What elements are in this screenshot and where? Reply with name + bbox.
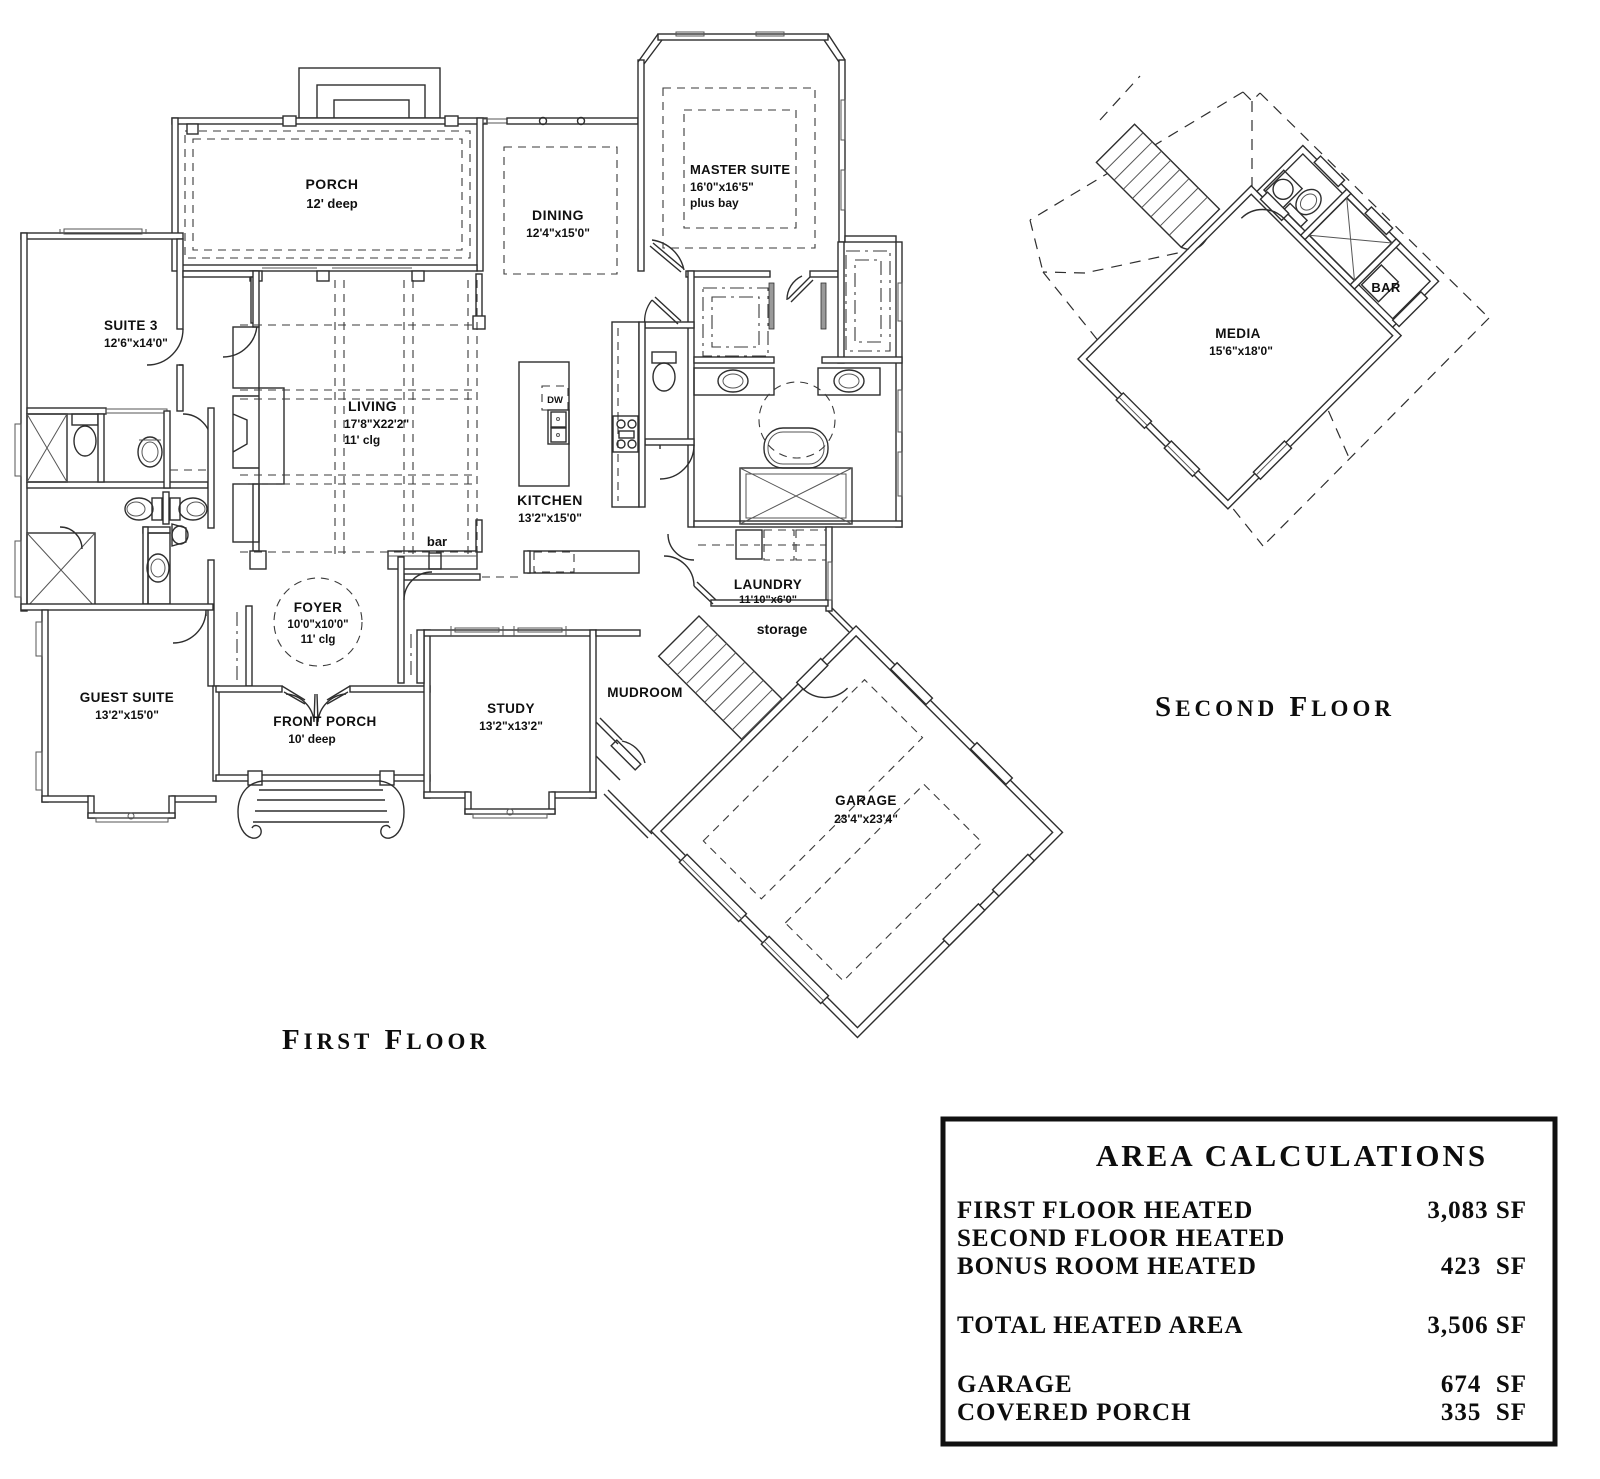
svg-text:10'0"x10'0": 10'0"x10'0" bbox=[287, 619, 348, 631]
svg-text:10' deep: 10' deep bbox=[288, 732, 336, 746]
svg-text:11' clg: 11' clg bbox=[344, 433, 380, 447]
svg-text:GARAGE: GARAGE bbox=[957, 1371, 1073, 1398]
svg-text:BONUS ROOM HEATED: BONUS ROOM HEATED bbox=[957, 1253, 1257, 1280]
svg-text:23'4"x23'4": 23'4"x23'4" bbox=[834, 812, 898, 826]
svg-text:17'8"X22'2": 17'8"X22'2" bbox=[344, 417, 409, 431]
svg-text:13'2"x13'2": 13'2"x13'2" bbox=[479, 719, 543, 733]
svg-text:11'10"x6'0": 11'10"x6'0" bbox=[739, 594, 797, 606]
svg-text:FIRST FLOOR HEATED: FIRST FLOOR HEATED bbox=[957, 1197, 1253, 1224]
svg-text:AREA CALCULATIONS: AREA CALCULATIONS bbox=[1096, 1138, 1488, 1173]
svg-text:12'4"x15'0": 12'4"x15'0" bbox=[526, 226, 590, 240]
svg-text:KITCHEN: KITCHEN bbox=[517, 492, 583, 508]
svg-text:BAR: BAR bbox=[1371, 280, 1401, 295]
svg-text:SECOND FLOOR: SECOND FLOOR bbox=[1155, 691, 1395, 723]
svg-text:PORCH: PORCH bbox=[305, 176, 358, 192]
svg-text:bar: bar bbox=[427, 534, 447, 549]
svg-text:16'0"x16'5": 16'0"x16'5" bbox=[690, 180, 754, 194]
svg-text:FRONT PORCH: FRONT PORCH bbox=[273, 714, 376, 729]
svg-text:GARAGE: GARAGE bbox=[835, 793, 897, 808]
svg-text:GUEST SUITE: GUEST SUITE bbox=[80, 690, 174, 705]
svg-text:storage: storage bbox=[757, 621, 808, 637]
svg-text:13'2"x15'0": 13'2"x15'0" bbox=[518, 511, 582, 525]
svg-text:plus bay: plus bay bbox=[690, 196, 739, 210]
svg-text:MASTER SUITE: MASTER SUITE bbox=[690, 162, 790, 177]
svg-text:MUDROOM: MUDROOM bbox=[607, 685, 683, 700]
svg-text:674 SF: 674 SF bbox=[1441, 1371, 1527, 1398]
svg-text:3,083 SF: 3,083 SF bbox=[1427, 1197, 1527, 1224]
svg-text:LIVING: LIVING bbox=[348, 398, 397, 414]
svg-text:COVERED PORCH: COVERED PORCH bbox=[957, 1399, 1192, 1426]
svg-text:FIRST FLOOR: FIRST FLOOR bbox=[282, 1024, 490, 1056]
svg-text:MEDIA: MEDIA bbox=[1215, 326, 1261, 341]
svg-text:12' deep: 12' deep bbox=[306, 196, 358, 211]
svg-text:SUITE 3: SUITE 3 bbox=[104, 318, 158, 333]
svg-text:3,506 SF: 3,506 SF bbox=[1427, 1312, 1527, 1339]
svg-text:STUDY: STUDY bbox=[487, 701, 535, 716]
svg-text:13'2"x15'0": 13'2"x15'0" bbox=[95, 708, 159, 722]
svg-text:15'6"x18'0": 15'6"x18'0" bbox=[1209, 344, 1273, 358]
svg-text:DW: DW bbox=[547, 395, 563, 406]
svg-text:SECOND FLOOR HEATED: SECOND FLOOR HEATED bbox=[957, 1225, 1285, 1252]
svg-text:12'6"x14'0": 12'6"x14'0" bbox=[104, 336, 168, 350]
svg-text:FOYER: FOYER bbox=[294, 600, 343, 615]
svg-text:LAUNDRY: LAUNDRY bbox=[734, 577, 802, 592]
svg-text:423 SF: 423 SF bbox=[1441, 1253, 1527, 1280]
svg-text:DINING: DINING bbox=[532, 207, 584, 223]
svg-text:335 SF: 335 SF bbox=[1441, 1399, 1527, 1426]
svg-text:TOTAL HEATED AREA: TOTAL HEATED AREA bbox=[957, 1312, 1244, 1339]
svg-text:11' clg: 11' clg bbox=[301, 634, 336, 646]
